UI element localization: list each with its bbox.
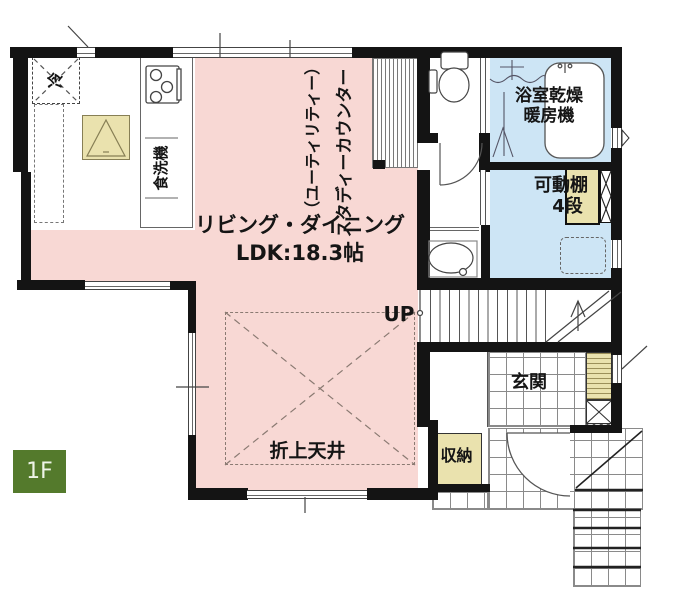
wall <box>13 47 28 172</box>
dishwasher-label: 食洗機 <box>150 138 172 198</box>
wall <box>488 162 622 170</box>
ldk-bottom-window <box>247 490 367 499</box>
wall <box>479 133 490 172</box>
living-room-size: LDK:18.3帖 <box>185 242 415 264</box>
wall <box>417 352 430 427</box>
wall <box>352 47 622 58</box>
floor-plan-1f: 冷 食洗機 スタディーカウンター （ユーティリティー） 浴室乾燥 暖房機 可動棚… <box>0 0 691 616</box>
ldk-left-upper-window <box>85 281 170 290</box>
powder-door-swing <box>440 143 482 185</box>
wall <box>17 280 85 290</box>
wall <box>611 383 622 433</box>
wall <box>21 172 31 284</box>
ldk-top-window <box>173 47 352 58</box>
ldk-left-lower-window <box>188 333 196 435</box>
storage-label: 収納 <box>432 448 481 465</box>
kitchen-island-sink <box>82 115 130 160</box>
refrigerator-label: 冷 <box>42 66 70 94</box>
wall <box>417 170 430 280</box>
toilet <box>429 241 477 277</box>
bathroom-label-line1: 浴室乾燥 <box>489 88 609 106</box>
wall <box>188 488 248 500</box>
laundry-sliding-door <box>480 170 486 225</box>
stairs-treads <box>430 290 548 342</box>
bathroom-label-line2: 暖房機 <box>489 108 609 126</box>
wall <box>611 47 622 128</box>
porch-tiles <box>488 428 643 510</box>
kitchen-pantry-outline <box>34 104 64 223</box>
wall <box>417 58 430 140</box>
wall <box>95 47 173 58</box>
bathroom-window <box>612 128 622 148</box>
shoe-cabinet-lower <box>586 400 612 424</box>
genkan-label: 玄関 <box>495 374 563 393</box>
utility-label: （ユーティリティー） <box>302 65 324 217</box>
study-counter-desk <box>372 58 418 168</box>
genkan-window <box>612 355 622 383</box>
laundry-window <box>612 240 622 268</box>
washbasin <box>429 52 469 102</box>
shelf-label-line1: 可動棚 <box>522 177 600 196</box>
porch-tiles-side <box>432 492 488 510</box>
shelf-label-line2: 4段 <box>535 198 600 217</box>
wall <box>417 278 622 290</box>
wall <box>417 133 438 143</box>
floor-badge: 1F <box>13 450 66 493</box>
genkan-step-edge <box>487 352 490 427</box>
washer-space-outline <box>560 237 606 274</box>
up-label: UP <box>380 304 418 325</box>
shoe-cabinet <box>586 352 612 400</box>
wall <box>611 268 622 355</box>
wall <box>373 160 385 169</box>
wall <box>611 148 622 240</box>
bathroom-sliding-door <box>480 58 486 133</box>
exterior-steps <box>573 510 641 587</box>
kitchen-window <box>77 47 95 58</box>
wall <box>428 484 490 492</box>
bath-window-marker <box>622 130 629 146</box>
ceiling-label: 折上天井 <box>245 442 370 462</box>
wall <box>481 225 490 280</box>
powder-room-divider <box>430 227 479 231</box>
wall <box>417 342 622 352</box>
wall <box>188 283 196 335</box>
living-room-name: リビング・ダイニング <box>185 214 415 236</box>
